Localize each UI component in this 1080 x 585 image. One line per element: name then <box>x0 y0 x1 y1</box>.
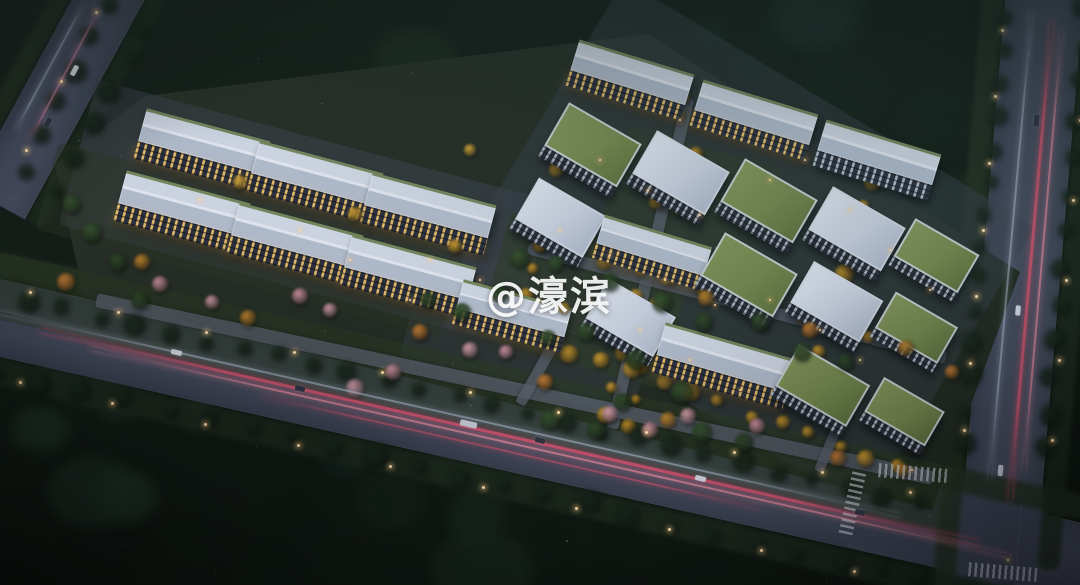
tree-pink <box>680 408 696 424</box>
tree-pink <box>642 422 658 438</box>
tree-orange <box>898 340 914 356</box>
street-lamp <box>95 11 98 14</box>
street-lamp <box>645 431 648 434</box>
distant-glint <box>724 208 726 210</box>
roadside-hedge <box>751 537 767 553</box>
distant-glint <box>829 458 831 460</box>
roadside-hedge <box>453 388 468 403</box>
roadside-hedge <box>97 81 120 104</box>
tree-row-tree <box>593 352 609 368</box>
street-lamp <box>575 507 578 510</box>
distant-glint <box>851 47 853 49</box>
roadside-hedge <box>95 312 110 327</box>
roadside-hedge <box>976 207 992 223</box>
distant-glint <box>170 556 172 558</box>
street-lamp <box>821 471 824 474</box>
street-lamp <box>988 162 991 165</box>
roadside-hedge <box>1039 367 1060 388</box>
tree-row-tree <box>631 395 640 404</box>
tree-pink <box>292 288 308 304</box>
distant-glint <box>1071 32 1073 34</box>
distant-glint <box>324 330 326 332</box>
roadside-hedge <box>483 396 501 414</box>
roadside-hedge <box>411 382 427 398</box>
street-lamp <box>969 362 972 365</box>
street-lamp <box>205 331 208 334</box>
tree-orange <box>830 450 846 466</box>
tree-orange <box>945 365 959 379</box>
distant-glint <box>153 568 155 570</box>
roadside-hedge <box>51 185 65 199</box>
tree-row-tree <box>560 345 578 363</box>
distant-glint <box>893 419 895 421</box>
roadside-hedge <box>125 51 139 65</box>
street-lamp <box>1065 279 1068 282</box>
roadside-hedge <box>770 466 788 484</box>
roadside-hedge <box>987 106 1009 128</box>
aerial-night-render: @濠滨 <box>0 0 1080 585</box>
distant-glint <box>256 445 258 447</box>
street-lamp <box>111 402 114 405</box>
roadside-hedge <box>1052 296 1072 316</box>
roadside-hedge <box>25 371 52 398</box>
street-lamp <box>204 423 207 426</box>
street-lamp <box>668 528 671 531</box>
tree-green <box>793 343 811 361</box>
distant-glint <box>43 554 45 556</box>
tree-orange <box>660 412 676 428</box>
tree-orange <box>698 290 714 306</box>
roadside-hedge <box>788 547 805 564</box>
roadside-hedge <box>834 554 854 574</box>
roadside-hedge <box>411 458 428 475</box>
street-lamp <box>963 429 966 432</box>
roadside-hedge <box>910 567 932 585</box>
roadside-hedge <box>305 357 323 375</box>
roadside-hedge <box>959 362 983 386</box>
tree-green <box>420 292 436 308</box>
roadside-hedge <box>971 268 987 284</box>
tree-orange <box>412 324 428 340</box>
street-lamp <box>60 80 63 83</box>
street-lamp <box>909 491 912 494</box>
tree-green <box>671 381 693 403</box>
street-lamp <box>293 351 296 354</box>
roadside-hedge <box>134 23 151 40</box>
distant-glint <box>215 569 217 571</box>
distant-glint <box>258 58 260 60</box>
street-lamp <box>1001 29 1004 32</box>
roadside-hedge <box>1040 404 1064 428</box>
roadside-hedge <box>83 112 106 135</box>
tree-green <box>453 303 471 321</box>
tree-green <box>540 330 556 346</box>
vehicle <box>1033 114 1039 125</box>
roadside-hedge <box>578 490 602 514</box>
tree-green <box>695 313 713 331</box>
street-lamp <box>297 444 300 447</box>
roadside-hedge <box>875 561 890 576</box>
roadside-hedge <box>1062 189 1078 205</box>
roadside-hedge <box>992 8 1013 29</box>
roadside-hedge <box>805 472 819 486</box>
tree-green <box>735 433 753 451</box>
tree-row-tree <box>857 450 874 467</box>
tree-green <box>63 195 81 213</box>
street-lamp <box>1051 439 1054 442</box>
tree-pink <box>152 276 168 292</box>
street-lamp <box>1058 359 1061 362</box>
street-lamp <box>381 371 384 374</box>
distant-glint <box>452 363 454 365</box>
roadside-hedge <box>496 478 512 494</box>
tree-green <box>587 421 605 439</box>
distant-glint <box>566 540 568 542</box>
tree-yellow <box>348 207 362 221</box>
tree-green <box>109 253 127 271</box>
roadside-hedge <box>1065 149 1080 167</box>
distant-glint <box>801 284 803 286</box>
roadside-hedge <box>362 443 388 469</box>
distant-glint <box>928 515 930 517</box>
roadside-hedge <box>199 336 214 351</box>
tree-orange <box>57 273 75 291</box>
roadside-hedge <box>1050 259 1071 280</box>
distant-glint <box>569 330 571 332</box>
tree-green <box>82 222 102 242</box>
roadside-hedge <box>162 325 181 344</box>
street-lamp <box>469 391 472 394</box>
roadside-hedge <box>914 496 928 510</box>
roadside-hedge <box>69 379 93 403</box>
roadside-hedge <box>101 0 119 15</box>
distant-glint <box>124 543 126 545</box>
tree-row-tree <box>802 426 814 438</box>
street-lamp <box>733 451 736 454</box>
tree-pink <box>602 406 618 422</box>
tree-green <box>751 313 769 331</box>
street-lamp <box>19 381 22 384</box>
roadside-hedge <box>123 314 147 338</box>
roadside-hedge <box>985 143 1003 161</box>
forest-tree-clump <box>250 539 296 576</box>
street-lamp <box>25 149 28 152</box>
tree-green <box>692 422 712 442</box>
watermark-text: @濠滨 <box>486 264 612 322</box>
tree-pink <box>323 303 337 317</box>
tree-pink <box>385 364 401 380</box>
roadside-hedge <box>18 164 35 181</box>
vehicle <box>997 464 1003 475</box>
roadside-hedge <box>695 446 712 463</box>
roadside-hedge <box>557 412 578 433</box>
tree-pink <box>462 342 478 358</box>
distant-glint <box>826 578 828 580</box>
tree-row-tree <box>776 415 790 429</box>
distant-glint <box>193 452 195 454</box>
tree-orange <box>134 254 150 270</box>
street-lamp <box>982 229 985 232</box>
tree-green <box>577 323 595 341</box>
distant-glint <box>96 425 98 427</box>
roadside-hedge <box>324 439 344 459</box>
tree-row-tree <box>606 382 617 393</box>
street-lamp <box>29 291 32 294</box>
roadside-hedge <box>53 298 71 316</box>
roadside-hedge <box>871 488 892 509</box>
street-lamp <box>117 311 120 314</box>
tree-pink <box>749 418 765 434</box>
tree-green <box>652 292 672 312</box>
roadside-hedge <box>660 434 684 458</box>
vehicle <box>1015 305 1021 315</box>
distant-glint <box>549 578 551 580</box>
tree-pink <box>499 345 513 359</box>
street-lamp <box>1072 199 1075 202</box>
roadside-hedge <box>533 485 552 504</box>
distant-glint <box>1028 53 1030 55</box>
street-lamp <box>557 411 560 414</box>
roadside-hedge <box>271 346 287 362</box>
roadside-hedge <box>521 407 535 421</box>
roadside-hedge <box>968 305 983 320</box>
forest-tree-clump <box>12 407 68 452</box>
roadside-hedge <box>65 149 85 169</box>
roadside-hedge <box>164 405 180 421</box>
tree-green <box>131 291 149 309</box>
forest-tree-clump <box>47 457 136 528</box>
tree-green <box>838 354 854 370</box>
tree-yellow <box>448 239 462 253</box>
tree-green <box>626 350 646 370</box>
roadside-hedge <box>615 504 641 530</box>
tree-orange <box>802 322 818 338</box>
tree-yellow <box>464 144 476 156</box>
tree-orange <box>537 374 553 390</box>
tree-orange <box>240 310 256 326</box>
roadside-hedge <box>1065 112 1080 131</box>
tree-pink <box>205 295 219 309</box>
tree-yellow <box>233 175 247 189</box>
